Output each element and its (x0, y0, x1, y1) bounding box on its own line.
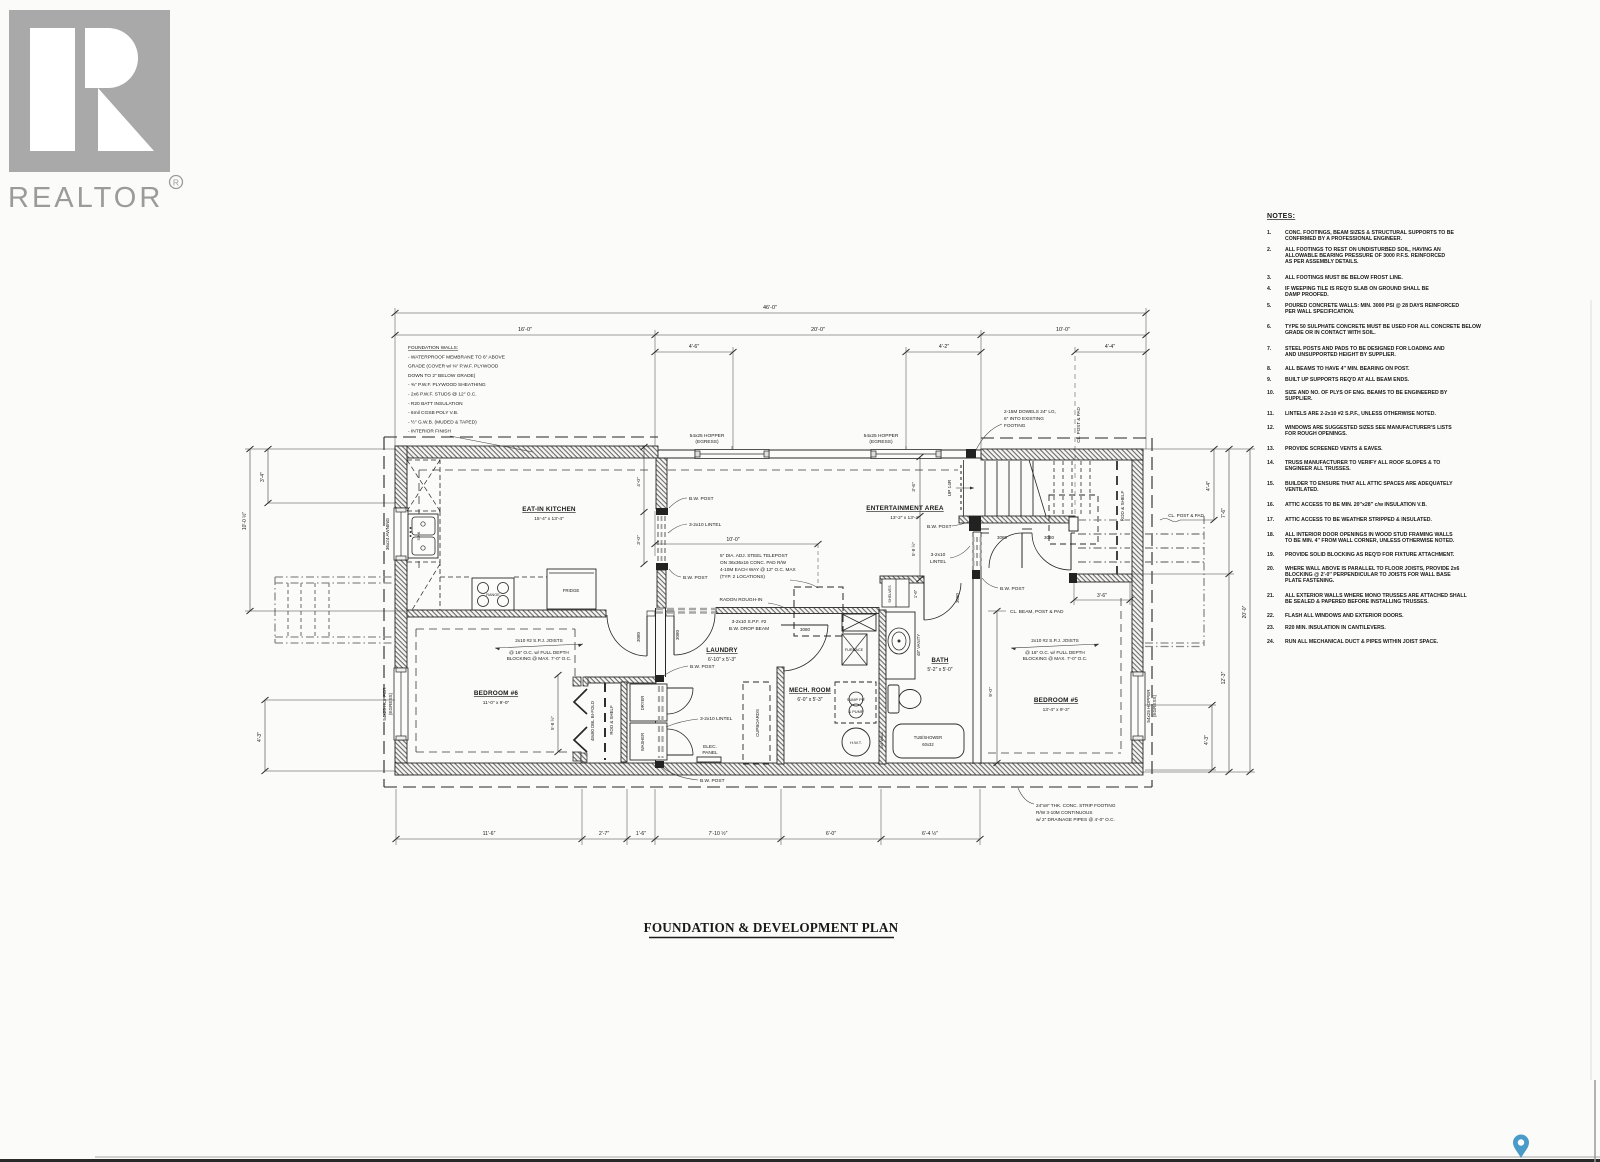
svg-text:(EGRESS): (EGRESS) (695, 439, 719, 445)
svg-text:4′-3″: 4′-3″ (1204, 735, 1210, 745)
svg-text:B.W. POST: B.W. POST (1000, 586, 1025, 592)
svg-text:9′-0″: 9′-0″ (988, 687, 994, 697)
svg-text:- 6mil CGSB POLY V.B.: - 6mil CGSB POLY V.B. (408, 410, 458, 416)
svg-text:SINK: SINK (417, 531, 421, 540)
svg-text:UP 14R: UP 14R (947, 479, 953, 496)
svg-text:PLATE FASTENING.: PLATE FASTENING. (1285, 578, 1335, 584)
svg-text:54x25 HOPPER: 54x25 HOPPER (690, 433, 725, 439)
svg-text:ROD & SHELF: ROD & SHELF (1120, 490, 1125, 521)
svg-text:19.: 19. (1267, 552, 1275, 558)
svg-text:(TYP. 2 LOCATIONS): (TYP. 2 LOCATIONS) (720, 574, 765, 579)
svg-text:36x24 AWNING: 36x24 AWNING (385, 517, 390, 550)
svg-text:12′-3″: 12′-3″ (1221, 671, 1227, 684)
svg-text:3-2x10 S.P.F. #2: 3-2x10 S.P.F. #2 (732, 619, 767, 625)
svg-text:GRADE OR IN CONTACT WITH SOIL.: GRADE OR IN CONTACT WITH SOIL. (1285, 330, 1376, 336)
svg-text:ATTIC ACCESS TO BE WEATHER STR: ATTIC ACCESS TO BE WEATHER STRIPPED & IN… (1285, 517, 1433, 523)
svg-text:5.: 5. (1267, 303, 1272, 309)
svg-text:10′-0″: 10′-0″ (726, 537, 739, 543)
svg-text:48x80 DBL BI-FOLD: 48x80 DBL BI-FOLD (590, 701, 595, 741)
svg-text:3′-4″: 3′-4″ (260, 472, 266, 482)
svg-text:4′-2″: 4′-2″ (939, 344, 949, 350)
svg-text:SUPPLIER.: SUPPLIER. (1285, 396, 1313, 402)
svg-text:B.W. POST: B.W. POST (689, 496, 714, 502)
svg-text:MECH. ROOM: MECH. ROOM (789, 688, 831, 694)
svg-text:2-15M DOWELS 24″ LG,: 2-15M DOWELS 24″ LG, (1004, 409, 1056, 414)
svg-text:5′-2″ x 5′-0″: 5′-2″ x 5′-0″ (927, 667, 952, 673)
svg-text:(EGRESS): (EGRESS) (388, 692, 393, 715)
svg-text:3′-0″: 3′-0″ (636, 535, 642, 545)
svg-text:CUPBOARDS: CUPBOARDS (755, 709, 760, 737)
svg-text:RUN ALL MECHANICAL DUCT & PIPE: RUN ALL MECHANICAL DUCT & PIPES WITHIN J… (1285, 639, 1439, 645)
svg-text:46′-0″: 46′-0″ (763, 305, 777, 311)
svg-text:15.: 15. (1267, 481, 1275, 487)
svg-text:3080: 3080 (636, 631, 641, 642)
svg-text:H.W.T.: H.W.T. (850, 740, 862, 745)
svg-text:16′-0″: 16′-0″ (518, 327, 532, 333)
svg-text:17.: 17. (1267, 517, 1275, 523)
svg-text:AND UNSUPPORTED HEIGHT BY SUPP: AND UNSUPPORTED HEIGHT BY SUPPLIER. (1285, 352, 1396, 358)
svg-text:18.: 18. (1267, 532, 1275, 538)
svg-text:SHELVES: SHELVES (888, 585, 892, 603)
svg-text:6″ INTO EXISTING: 6″ INTO EXISTING (1004, 416, 1044, 421)
svg-text:- ⅜″ P.W.F. PLYWOOD SHEATHING: - ⅜″ P.W.F. PLYWOOD SHEATHING (408, 382, 486, 388)
svg-text:10′-0″: 10′-0″ (1056, 327, 1070, 333)
svg-text:- INTERIOR FINISH: - INTERIOR FINISH (408, 429, 451, 435)
svg-text:FOUNDATION & DEVELOPMENT PLAN: FOUNDATION & DEVELOPMENT PLAN (644, 920, 899, 935)
svg-text:- 2x6 P.W.F. STUDS @ 12″ O.C.: - 2x6 P.W.F. STUDS @ 12″ O.C. (408, 392, 477, 398)
svg-text:20′-0″: 20′-0″ (811, 327, 825, 333)
svg-text:2x10 #2 S.P.J. JOISTS: 2x10 #2 S.P.J. JOISTS (1031, 638, 1079, 643)
svg-text:REALTOR: REALTOR (8, 182, 163, 214)
svg-text:8.: 8. (1267, 366, 1272, 372)
svg-text:15′-4″ x 13′-4″: 15′-4″ x 13′-4″ (534, 516, 564, 522)
svg-text:WASHER: WASHER (640, 733, 645, 751)
svg-text:- WATERPROOF MEMBRANE TO 6″ AB: - WATERPROOF MEMBRANE TO 6″ ABOVE (408, 354, 505, 360)
svg-text:6′-0″ x 5′-3″: 6′-0″ x 5′-3″ (797, 697, 822, 703)
svg-text:B.W. POST: B.W. POST (927, 524, 952, 530)
svg-text:w/ 2″ DRAINAGE PIPES @ 4′-0″ O: w/ 2″ DRAINAGE PIPES @ 4′-0″ O.C. (1036, 817, 1115, 822)
svg-text:24.: 24. (1267, 639, 1275, 645)
svg-text:& PUMP: & PUMP (849, 709, 864, 714)
svg-text:3′-6″: 3′-6″ (911, 482, 917, 492)
svg-text:FURNACE: FURNACE (845, 648, 864, 652)
svg-text:ENGINEER ALL TRUSSES.: ENGINEER ALL TRUSSES. (1285, 466, 1351, 472)
svg-text:FLASH ALL WINDOWS AND EXTERIOR: FLASH ALL WINDOWS AND EXTERIOR DOORS. (1285, 613, 1404, 619)
svg-text:54x25 HOPPER: 54x25 HOPPER (864, 433, 899, 439)
svg-text:- ½″ G.W.B. (MUDED & TAPED): - ½″ G.W.B. (MUDED & TAPED) (408, 418, 477, 425)
svg-text:4′-4″: 4′-4″ (1105, 344, 1115, 350)
svg-text:@ 16″ O.C. w/ FULL DEPTH: @ 16″ O.C. w/ FULL DEPTH (1025, 650, 1085, 655)
svg-text:TUB/SHOWER: TUB/SHOWER (914, 735, 942, 740)
svg-text:ON 36x36x16 CONC. PAD R/W: ON 36x36x16 CONC. PAD R/W (720, 560, 787, 565)
svg-text:CL. BEAM, POST & PAD: CL. BEAM, POST & PAD (1010, 609, 1064, 615)
svg-text:6′-4 ½″: 6′-4 ½″ (922, 830, 938, 837)
svg-text:AS PER ASSEMBLY DETAILS.: AS PER ASSEMBLY DETAILS. (1285, 259, 1359, 265)
svg-text:DRYER: DRYER (640, 696, 645, 711)
svg-text:BLOCKING @ MAX. 7′-0″ O.C.: BLOCKING @ MAX. 7′-0″ O.C. (507, 656, 572, 661)
svg-text:48″ VANITY: 48″ VANITY (916, 634, 921, 656)
svg-text:LINTEL: LINTEL (930, 559, 947, 565)
svg-text:B.W. POST: B.W. POST (683, 575, 708, 581)
svg-text:6.: 6. (1267, 324, 1272, 330)
svg-text:7′-10 ½″: 7′-10 ½″ (709, 830, 728, 837)
svg-text:3.: 3. (1267, 275, 1272, 281)
svg-text:FRIDGE: FRIDGE (563, 588, 580, 593)
svg-text:3080: 3080 (675, 629, 680, 640)
svg-text:20′-0″: 20′-0″ (1242, 605, 1248, 618)
svg-text:23.: 23. (1267, 625, 1275, 631)
svg-text:3′-6″: 3′-6″ (1097, 593, 1107, 599)
svg-text:14.: 14. (1267, 460, 1275, 466)
svg-text:6′-0″: 6′-0″ (826, 831, 836, 837)
svg-text:VENTILATED.: VENTILATED. (1285, 487, 1319, 493)
svg-text:6′-10″ x 5′-3″: 6′-10″ x 5′-3″ (708, 657, 736, 663)
svg-text:10′-0 ½″: 10′-0 ½″ (241, 512, 248, 531)
svg-text:ALL FOOTINGS MUST BE BELOW FRO: ALL FOOTINGS MUST BE BELOW FROST LINE. (1285, 275, 1403, 281)
svg-text:2′-7″: 2′-7″ (599, 831, 609, 837)
svg-text:12.: 12. (1267, 425, 1275, 431)
svg-text:RADON ROUGH-IN: RADON ROUGH-IN (720, 597, 763, 603)
svg-text:22.: 22. (1267, 613, 1275, 619)
svg-text:PROVIDE SOLID BLOCKING AS REQ': PROVIDE SOLID BLOCKING AS REQ'D FOR FIXT… (1285, 552, 1455, 558)
svg-text:4.: 4. (1267, 286, 1272, 292)
svg-text:4′-3″: 4′-3″ (257, 732, 263, 742)
svg-text:(EGRESS): (EGRESS) (869, 439, 893, 445)
svg-text:LINTELS ARE 2-2x10 #2 S.P.F.,: LINTELS ARE 2-2x10 #2 S.P.F., UNLESS OTH… (1285, 411, 1437, 417)
svg-text:R: R (173, 178, 179, 188)
svg-text:ELEC.: ELEC. (703, 744, 717, 750)
svg-text:SUMP PIT: SUMP PIT (847, 697, 866, 702)
svg-text:ROD & SHELF: ROD & SHELF (609, 705, 614, 735)
svg-text:2x10 #2 S.P.J. JOISTS: 2x10 #2 S.P.J. JOISTS (515, 638, 563, 643)
svg-text:- R20 BATT INSULATION: - R20 BATT INSULATION (408, 401, 463, 407)
svg-text:DAMP PROOFED.: DAMP PROOFED. (1285, 292, 1329, 298)
svg-text:54x25 HOPPER: 54x25 HOPPER (1146, 689, 1151, 723)
svg-text:3-2x10 LINTEL: 3-2x10 LINTEL (700, 716, 733, 722)
svg-text:FOR ROUGH OPENINGS.: FOR ROUGH OPENINGS. (1285, 431, 1348, 437)
svg-text:PROVIDE SCREENED VENTS & EAVES: PROVIDE SCREENED VENTS & EAVES. (1285, 446, 1383, 452)
svg-text:GRADE (COVER w/ ⅜″ P.W.F. PLYW: GRADE (COVER w/ ⅜″ P.W.F. PLYWOOD (408, 364, 499, 370)
svg-text:BE SEALED & PAPERED BEFORE INS: BE SEALED & PAPERED BEFORE INSTALLING TR… (1285, 599, 1429, 605)
svg-text:4′-0″: 4′-0″ (636, 477, 642, 487)
svg-text:13′-2″ x 13′-4″: 13′-2″ x 13′-4″ (890, 515, 920, 521)
svg-text:2.: 2. (1267, 247, 1272, 253)
svg-text:4′-4″: 4′-4″ (1206, 481, 1212, 491)
svg-text:DOWN TO 2″ BELOW GRADE): DOWN TO 2″ BELOW GRADE) (408, 373, 476, 379)
svg-text:B.W. DROP BEAM: B.W. DROP BEAM (729, 626, 769, 632)
svg-text:PER WALL SPECIFICATION.: PER WALL SPECIFICATION. (1285, 309, 1355, 315)
svg-text:5″ DIA. ADJ. STEEL TELEPOST: 5″ DIA. ADJ. STEEL TELEPOST (720, 553, 788, 558)
svg-text:16.: 16. (1267, 502, 1275, 508)
svg-text:5′-8 ½″: 5′-8 ½″ (549, 716, 555, 730)
svg-text:CL. POST & PAD: CL. POST & PAD (1168, 513, 1204, 518)
svg-text:21.: 21. (1267, 593, 1275, 599)
svg-text:3080: 3080 (800, 627, 811, 632)
svg-text:B.W. POST: B.W. POST (700, 778, 725, 784)
svg-text:CONFIRMED BY A PROFESSIONAL EN: CONFIRMED BY A PROFESSIONAL ENGINEER. (1285, 236, 1403, 242)
svg-text:24″x8″ THK. CONC. STRIP FOOTIN: 24″x8″ THK. CONC. STRIP FOOTING (1036, 803, 1116, 808)
svg-text:ATTIC ACCESS TO BE MIN. 20″x28: ATTIC ACCESS TO BE MIN. 20″x28″ c/w INSU… (1285, 502, 1427, 508)
svg-text:ENTERTAINMENT AREA: ENTERTAINMENT AREA (866, 505, 944, 512)
svg-text:ALL BEAMS TO HAVE 4″ MIN. BEAR: ALL BEAMS TO HAVE 4″ MIN. BEARING ON POS… (1285, 366, 1410, 372)
svg-text:60x32: 60x32 (922, 742, 934, 747)
svg-text:(EGRESS): (EGRESS) (1152, 694, 1157, 717)
svg-text:5′-8 ½″: 5′-8 ½″ (910, 542, 916, 556)
svg-text:3080: 3080 (997, 535, 1008, 540)
svg-text:3-2x10 LINTEL: 3-2x10 LINTEL (689, 522, 722, 528)
svg-text:FOOTING: FOOTING (1004, 423, 1026, 428)
svg-text:11′-0″ x 9′-0″: 11′-0″ x 9′-0″ (483, 700, 510, 706)
svg-text:@ 16″ O.C. w/ FULL DEPTH: @ 16″ O.C. w/ FULL DEPTH (509, 650, 569, 655)
svg-text:9.: 9. (1267, 377, 1272, 383)
svg-text:3-2x10: 3-2x10 (931, 552, 946, 558)
svg-text:20.: 20. (1267, 566, 1275, 572)
svg-text:LAUNDRY: LAUNDRY (706, 647, 738, 654)
svg-text:4-10M EACH WAY @ 12″ O.C. MAX: 4-10M EACH WAY @ 12″ O.C. MAX (720, 567, 796, 572)
svg-text:1'-6″: 1'-6″ (913, 589, 918, 598)
svg-text:TO BE MIN. 4″ FROM WALL CORNER: TO BE MIN. 4″ FROM WALL CORNER, UNLESS O… (1285, 538, 1455, 544)
svg-text:7.: 7. (1267, 346, 1272, 352)
svg-text:11′-6″: 11′-6″ (483, 831, 496, 837)
svg-text:FOUNDATION WALLS:: FOUNDATION WALLS: (408, 345, 458, 351)
svg-text:13.: 13. (1267, 446, 1275, 452)
svg-text:RANGE: RANGE (486, 593, 500, 597)
svg-text:3080: 3080 (955, 592, 960, 603)
svg-text:3080: 3080 (1044, 535, 1055, 540)
svg-text:BATH: BATH (931, 658, 948, 664)
svg-text:2x6 WALL: 2x6 WALL (880, 731, 884, 748)
svg-text:CL. POST & PAD: CL. POST & PAD (1076, 407, 1081, 443)
svg-text:B.W. POST: B.W. POST (690, 664, 715, 670)
svg-text:BEDROOM #5: BEDROOM #5 (1034, 697, 1079, 704)
svg-text:R20 MIN. INSULATION IN CANTILE: R20 MIN. INSULATION IN CANTILEVERS. (1285, 625, 1386, 631)
svg-text:7′-6″: 7′-6″ (1221, 508, 1227, 518)
svg-text:BLOCKING @ MAX. 7′-0″ O.C.: BLOCKING @ MAX. 7′-0″ O.C. (1023, 656, 1088, 661)
svg-text:1.: 1. (1267, 230, 1272, 236)
svg-text:EAT-IN KITCHEN: EAT-IN KITCHEN (522, 506, 576, 513)
svg-text:NOTES:: NOTES: (1267, 213, 1295, 220)
svg-text:11.: 11. (1267, 411, 1274, 417)
svg-text:10.: 10. (1267, 390, 1275, 396)
svg-text:PANEL: PANEL (702, 750, 718, 756)
svg-text:4′-6″: 4′-6″ (689, 344, 699, 350)
svg-text:1′-6″: 1′-6″ (636, 831, 646, 837)
svg-text:R/W 3-10M CONTINUOUS: R/W 3-10M CONTINUOUS (1036, 810, 1093, 815)
svg-text:BUILT UP SUPPORTS REQ'D AT ALL: BUILT UP SUPPORTS REQ'D AT ALL BEAM ENDS… (1285, 377, 1410, 383)
svg-text:13′-4″ x 9′-3″: 13′-4″ x 9′-3″ (1043, 707, 1070, 713)
svg-text:BEDROOM #6: BEDROOM #6 (474, 690, 519, 697)
